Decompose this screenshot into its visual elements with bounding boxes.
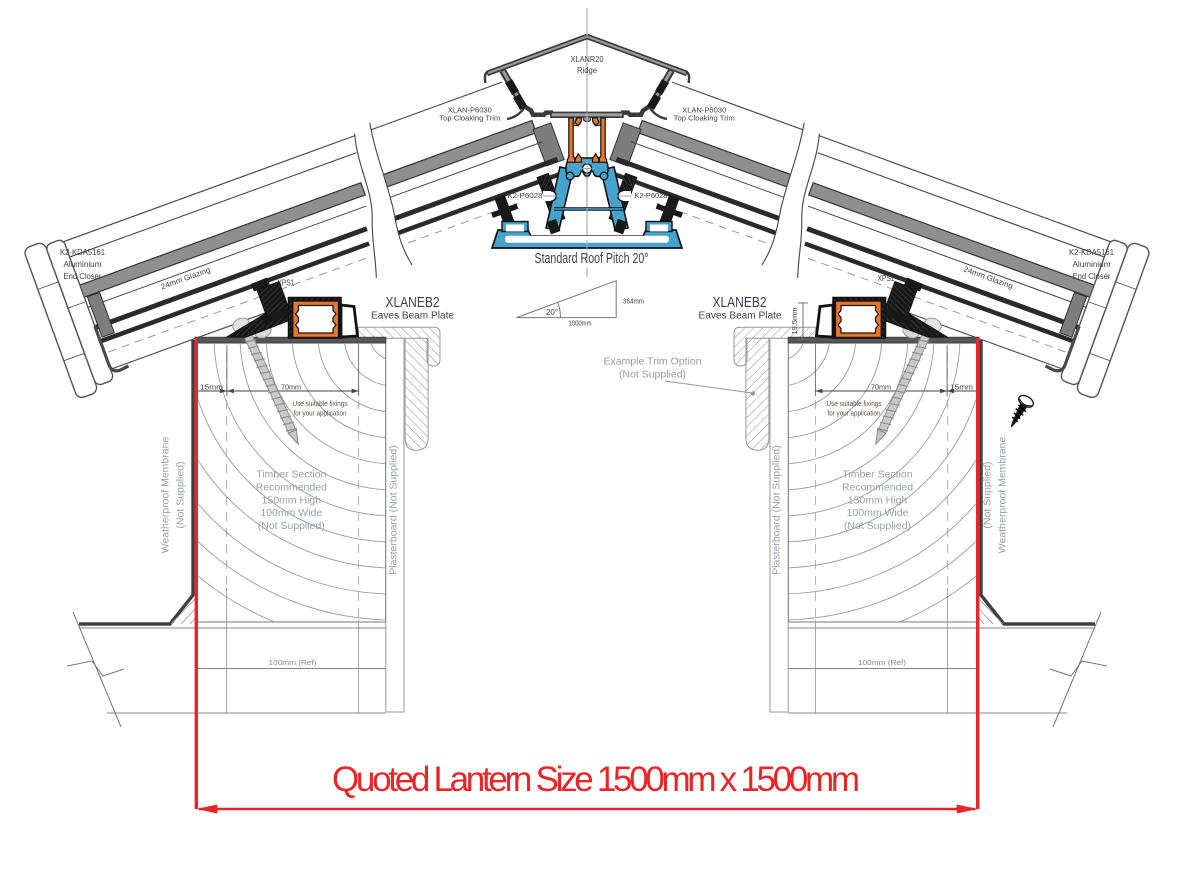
svg-text:Example Trim Option: Example Trim Option [603,356,701,368]
svg-text:(Not Supplied): (Not Supplied) [258,520,325,532]
svg-text:XPS1: XPS1 [878,273,895,283]
svg-text:Plasterboard (Not Supplied): Plasterboard (Not Supplied) [388,445,400,575]
svg-text:K2-KDA5161: K2-KDA5161 [60,247,105,257]
svg-text:15mm: 15mm [200,383,223,392]
svg-text:1000mm: 1000mm [569,319,592,328]
svg-text:Top Cloaking Trim: Top Cloaking Trim [674,113,735,122]
svg-text:100mm (Ref): 100mm (Ref) [858,658,907,667]
svg-text:Recommended: Recommended [842,481,913,493]
svg-text:End Closer: End Closer [1073,271,1111,281]
svg-text:K2-P6028: K2-P6028 [634,191,667,200]
svg-text:Standard Roof Pitch 20°: Standard Roof Pitch 20° [535,251,649,267]
svg-text:Weatherproof Membrane: Weatherproof Membrane [997,437,1009,554]
svg-text:XPS1: XPS1 [278,278,295,288]
svg-text:100mm Wide: 100mm Wide [260,507,322,519]
svg-text:Plasterboard (Not Supplied): Plasterboard (Not Supplied) [771,445,783,575]
svg-text:Eaves Beam Plate: Eaves Beam Plate [371,310,454,322]
svg-text:100mm Wide: 100mm Wide [847,507,909,519]
svg-text:70mm: 70mm [281,383,301,392]
svg-text:Aluminium: Aluminium [1073,259,1111,269]
svg-text:for your application: for your application [828,408,881,417]
svg-text:Timber Section: Timber Section [842,469,912,481]
svg-text:Timber Section: Timber Section [256,469,326,481]
svg-text:(Not Supplied): (Not Supplied) [619,369,686,381]
svg-text:364mm: 364mm [623,297,644,306]
svg-text:Recommended: Recommended [256,481,327,493]
svg-text:End Closer: End Closer [64,271,102,281]
svg-text:Aluminium: Aluminium [64,259,102,269]
svg-text:K2-KDA5161: K2-KDA5161 [1069,247,1114,257]
svg-text:Use suitable fixings: Use suitable fixings [827,399,882,408]
svg-text:Ridge: Ridge [577,65,597,75]
svg-text:XLANR20: XLANR20 [571,54,604,64]
svg-text:(Not Supplied): (Not Supplied) [175,461,187,528]
svg-text:for your application: for your application [294,408,347,417]
svg-text:19.5mm: 19.5mm [790,307,799,334]
svg-text:150mm High: 150mm High [262,494,322,506]
svg-text:150mm High: 150mm High [848,494,908,506]
svg-text:Weatherproof Membrane: Weatherproof Membrane [160,437,172,554]
svg-text:15mm: 15mm [950,383,973,392]
svg-text:Eaves Beam Plate: Eaves Beam Plate [699,310,782,322]
svg-text:(Not Supplied): (Not Supplied) [844,520,911,532]
svg-text:K2-P6028: K2-P6028 [507,191,542,200]
svg-text:(Not Supplied): (Not Supplied) [982,461,994,528]
svg-text:Quoted Lantern Size 1500mm x 1: Quoted Lantern Size 1500mm x 1500mm [332,760,860,799]
svg-text:100mm (Ref): 100mm (Ref) [269,658,318,667]
svg-text:20°: 20° [546,308,558,317]
svg-text:70mm: 70mm [871,383,891,392]
svg-text:Use suitable fixings: Use suitable fixings [293,399,348,408]
svg-text:Top Cloaking Trim: Top Cloaking Trim [439,113,500,122]
